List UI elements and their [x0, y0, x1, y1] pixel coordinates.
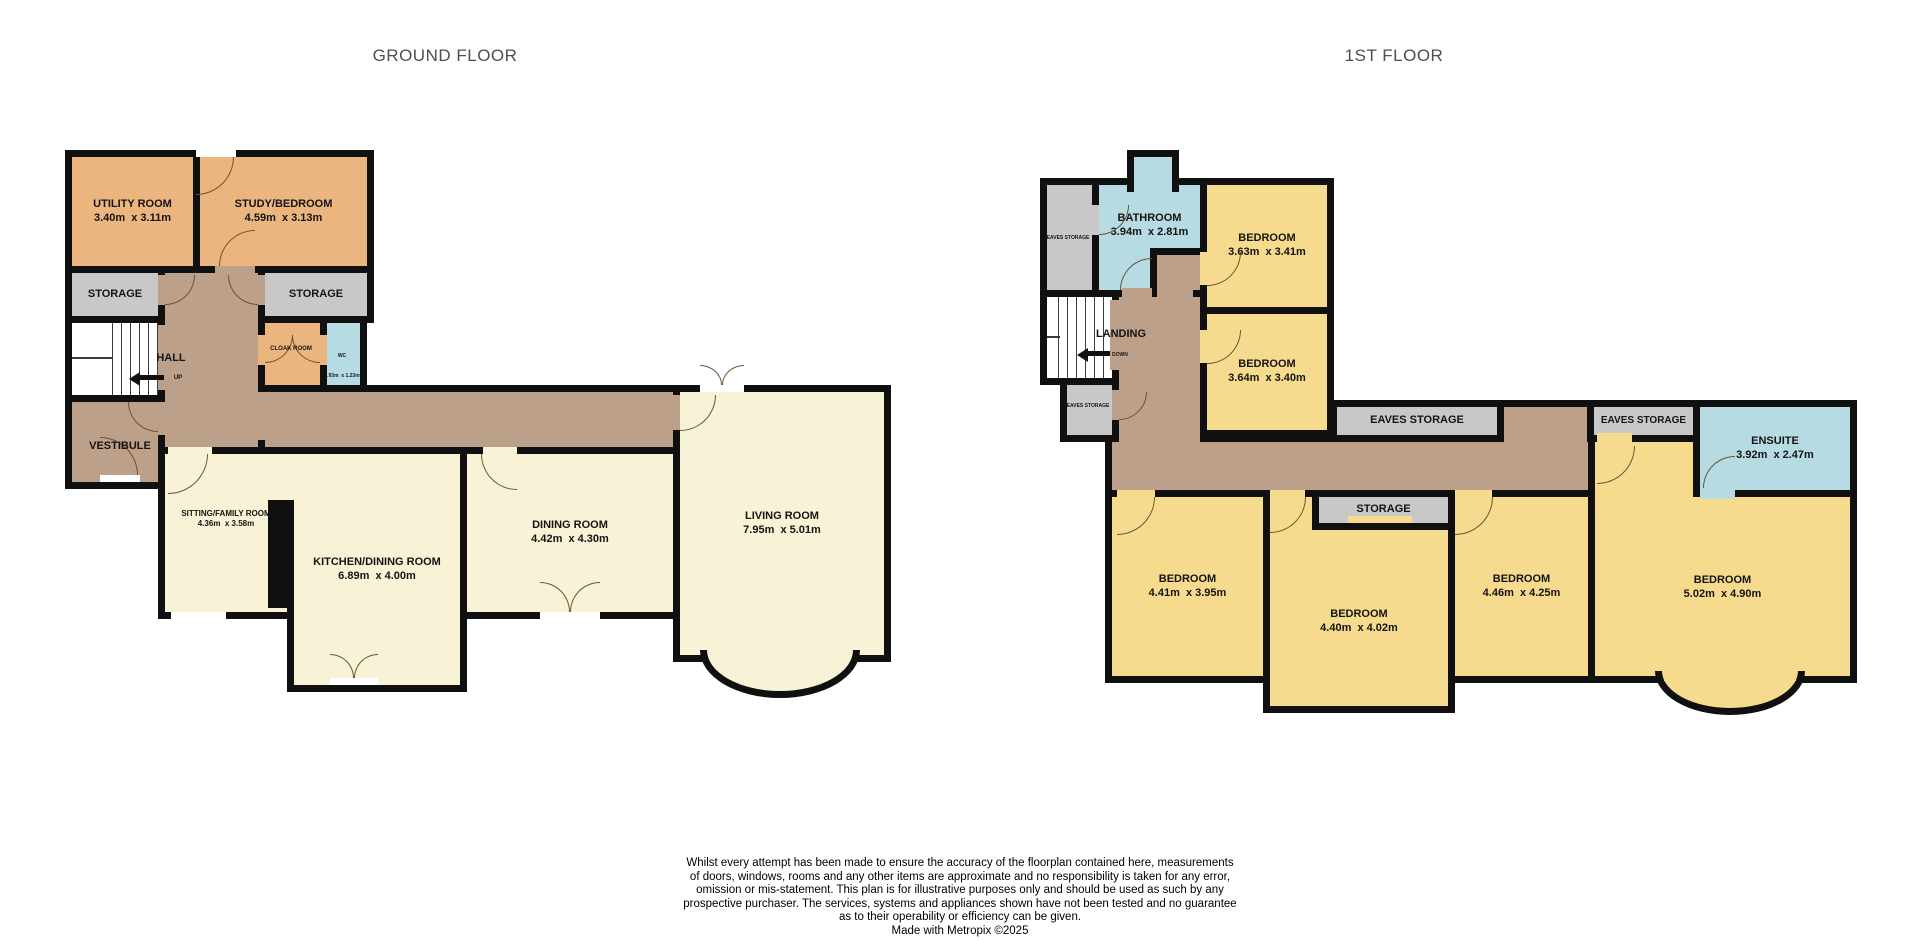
room-name: SITTING/FAMILY ROOM — [181, 509, 270, 519]
bay-open — [1664, 669, 1796, 681]
landing-label: LANDING — [1081, 328, 1161, 341]
door-opening — [158, 275, 165, 305]
door-opening — [158, 402, 165, 435]
room-name: UTILITY ROOM — [93, 198, 172, 212]
disclaimer-line: as to their operability or efficiency ca… — [0, 911, 1920, 925]
room-name: EAVES STORAGE — [1601, 415, 1686, 428]
room-bedroom-1: BEDROOM3.63m x 3.41m — [1200, 178, 1334, 314]
door-opening — [1200, 330, 1207, 363]
corridor-join — [252, 392, 272, 440]
room-dims: 4.36m x 3.58m — [181, 519, 270, 529]
room-storage-right: STORAGE — [258, 266, 374, 323]
door-opening — [483, 447, 517, 454]
metropix-credit: Made with Metropix ©2025 — [0, 925, 1920, 939]
room-name: WC — [316, 353, 368, 360]
door-opening — [1455, 490, 1492, 497]
room-storage-left: STORAGE — [65, 266, 165, 323]
room-dims: 3.94m x 2.81m — [1111, 226, 1189, 240]
disclaimer-line: Whilst every attempt has been made to en… — [0, 857, 1920, 871]
window-opening — [540, 612, 600, 619]
eaves-storage-mid-label: EAVES STORAGE — [1062, 403, 1114, 410]
down-label: DOWN — [1112, 352, 1138, 359]
room-name: STORAGE — [88, 288, 142, 302]
room-eaves-storage-bar-left: EAVES STORAGE — [1330, 400, 1504, 442]
room-dims: 4.40m x 4.02m — [1320, 622, 1398, 636]
door-opening — [673, 395, 680, 430]
bay-open — [709, 648, 851, 660]
kitchen-wall-stub — [268, 500, 290, 608]
door-opening — [1085, 205, 1099, 235]
up-label: UP — [168, 375, 188, 382]
door-opening — [196, 150, 236, 157]
sitting-kitchen-open — [287, 454, 294, 500]
door-opening — [100, 475, 140, 482]
room-dims: 3.92m x 2.47m — [1736, 449, 1814, 463]
door-opening — [1597, 433, 1632, 446]
window-opening — [171, 612, 226, 619]
door-opening — [1270, 490, 1305, 497]
room-name: BEDROOM — [1228, 358, 1306, 372]
room-name: STORAGE — [289, 288, 343, 302]
first-floor-title: 1ST FLOOR — [1304, 46, 1484, 66]
window-opening — [330, 678, 378, 685]
room-dims: 4.59m x 3.13m — [235, 212, 333, 226]
room-name: BEDROOM — [1228, 232, 1306, 246]
corridor-join — [1504, 433, 1587, 444]
window-opening — [700, 385, 744, 392]
room-utility: UTILITY ROOM3.40m x 3.11m — [65, 150, 200, 273]
door-opening — [1348, 516, 1412, 523]
cloak-label: CLOAK ROOM — [260, 346, 322, 353]
room-bedroom-2: BEDROOM3.64m x 3.40m — [1200, 307, 1334, 437]
room-storage-upper: STORAGE — [1312, 490, 1455, 530]
main-corridor — [258, 385, 680, 454]
corridor-join — [1200, 442, 1207, 490]
door-opening — [258, 275, 265, 305]
room-dims: 4.41m x 3.95m — [1149, 587, 1227, 601]
room-name: EAVES STORAGE — [1370, 414, 1464, 428]
room-name: BEDROOM — [1684, 574, 1762, 588]
room-dims: 5.02m x 4.90m — [1684, 588, 1762, 602]
corridor-join — [1112, 442, 1119, 490]
stair-landing-line — [1047, 336, 1060, 338]
eaves-storage-top-label: EAVES STORAGE — [1042, 235, 1094, 242]
door-opening — [1200, 252, 1207, 285]
window-swing-icon — [700, 365, 722, 385]
room-dims: 7.95m x 5.01m — [743, 524, 821, 538]
room-eaves-storage-mid — [1060, 378, 1119, 442]
room-dims: 6.89m x 4.00m — [313, 570, 441, 584]
wc-label: WC 1.93m x 1.23m — [316, 340, 368, 392]
room-dims: 4.42m x 4.30m — [531, 533, 609, 547]
room-name: LIVING ROOM — [743, 510, 821, 524]
room-living: LIVING ROOM7.95m x 5.01m — [673, 385, 891, 662]
room-name: KITCHEN/DINING ROOM — [313, 556, 441, 570]
room-name: BEDROOM — [1320, 608, 1398, 622]
room-name: ENSUITE — [1736, 435, 1814, 449]
room-name: BEDROOM — [1149, 573, 1227, 587]
door-opening — [168, 447, 212, 454]
door-opening — [1117, 490, 1155, 497]
disclaimer: Whilst every attempt has been made to en… — [0, 857, 1920, 938]
dormer-open — [1134, 176, 1172, 192]
vestibule-label: VESTIBULE — [70, 440, 170, 453]
disclaimer-line: omission or mis-statement. This plan is … — [0, 884, 1920, 898]
door-opening — [215, 266, 255, 273]
room-name: BEDROOM — [1483, 573, 1561, 587]
disclaimer-line: of doors, windows, rooms and any other i… — [0, 871, 1920, 885]
ground-floor-title: GROUND FLOOR — [355, 46, 535, 66]
room-name: STORAGE — [1356, 503, 1410, 517]
stair-landing-line — [72, 357, 112, 359]
room-name: STUDY/BEDROOM — [235, 198, 333, 212]
room-name: DINING ROOM — [531, 519, 609, 533]
room-dims: 4.46m x 4.25m — [1483, 587, 1561, 601]
room-dims: 1.93m x 1.23m — [316, 373, 368, 380]
hall-label: HALL — [136, 352, 206, 365]
corridor-join — [1157, 288, 1193, 299]
disclaimer-line: prospective purchaser. The services, sys… — [0, 898, 1920, 912]
room-dims: 3.64m x 3.40m — [1228, 372, 1306, 386]
floorplan-canvas: GROUND FLOOR 1ST FLOOR UTILITY ROOM3.40m… — [0, 0, 1920, 945]
room-dims: 3.40m x 3.11m — [93, 212, 172, 226]
window-swing-icon — [722, 365, 744, 385]
door-opening — [1700, 488, 1735, 499]
